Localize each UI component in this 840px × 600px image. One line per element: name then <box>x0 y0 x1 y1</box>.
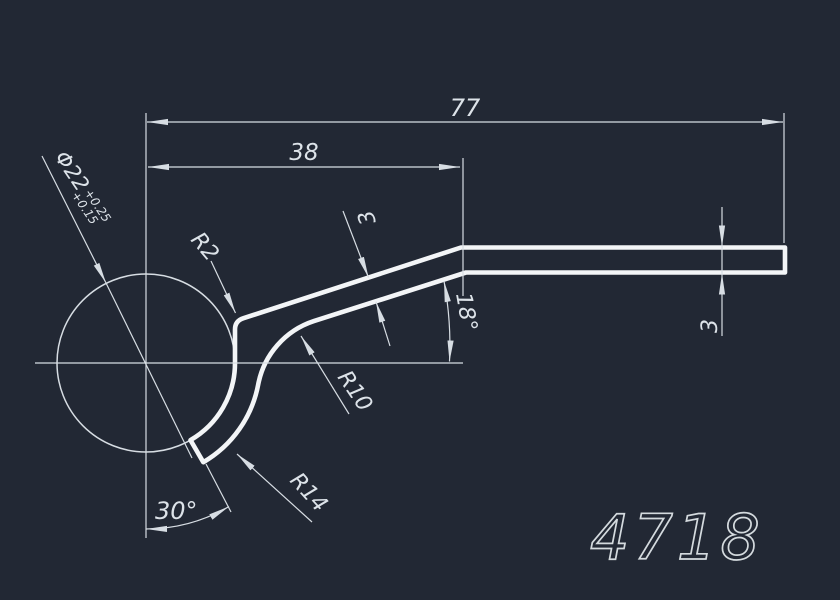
dim-text-3-end: 3 <box>698 319 723 333</box>
cad-drawing-canvas[interactable]: 77 38 Φ22+0.25+0.15 30° 3 3 18° R2 <box>0 0 840 600</box>
diameter-value: Φ22 <box>50 146 94 195</box>
end-angle-leader-line <box>206 464 231 512</box>
dim-end-angle: 30° <box>146 464 231 529</box>
diameter-label: Φ22+0.25+0.15 <box>46 146 116 231</box>
dim-overall-length: 77 <box>147 94 784 243</box>
dim-inner-bend-radius: R10 <box>301 336 377 416</box>
part-number: 4718 <box>590 501 764 574</box>
dim-text-r14: R14 <box>285 468 333 517</box>
dim-text-38: 38 <box>289 140 318 166</box>
dim-outer-hook-radius: R14 <box>237 454 332 522</box>
dim-text-r2: R2 <box>185 228 223 267</box>
profile-outline <box>191 248 786 463</box>
diameter-leader-through <box>106 283 192 458</box>
dim-corner-radius: R2 <box>185 228 235 313</box>
dim-text-18: 18° <box>450 291 481 334</box>
r2-leader-line <box>211 261 236 313</box>
dim-text-3-diagonal: 3 <box>354 207 382 228</box>
dim-text-77: 77 <box>450 94 481 122</box>
dim-bore-diameter: Φ22+0.25+0.15 <box>42 146 192 458</box>
dim-text-30: 30° <box>155 497 198 525</box>
dim-text-r10: R10 <box>332 366 377 416</box>
thickness-diag-lower-arrow <box>376 302 390 346</box>
dim-slope-angle: 18° <box>444 281 481 362</box>
cad-viewport: 77 38 Φ22+0.25+0.15 30° 3 3 18° R2 <box>0 0 840 600</box>
arc-18 <box>444 281 450 362</box>
